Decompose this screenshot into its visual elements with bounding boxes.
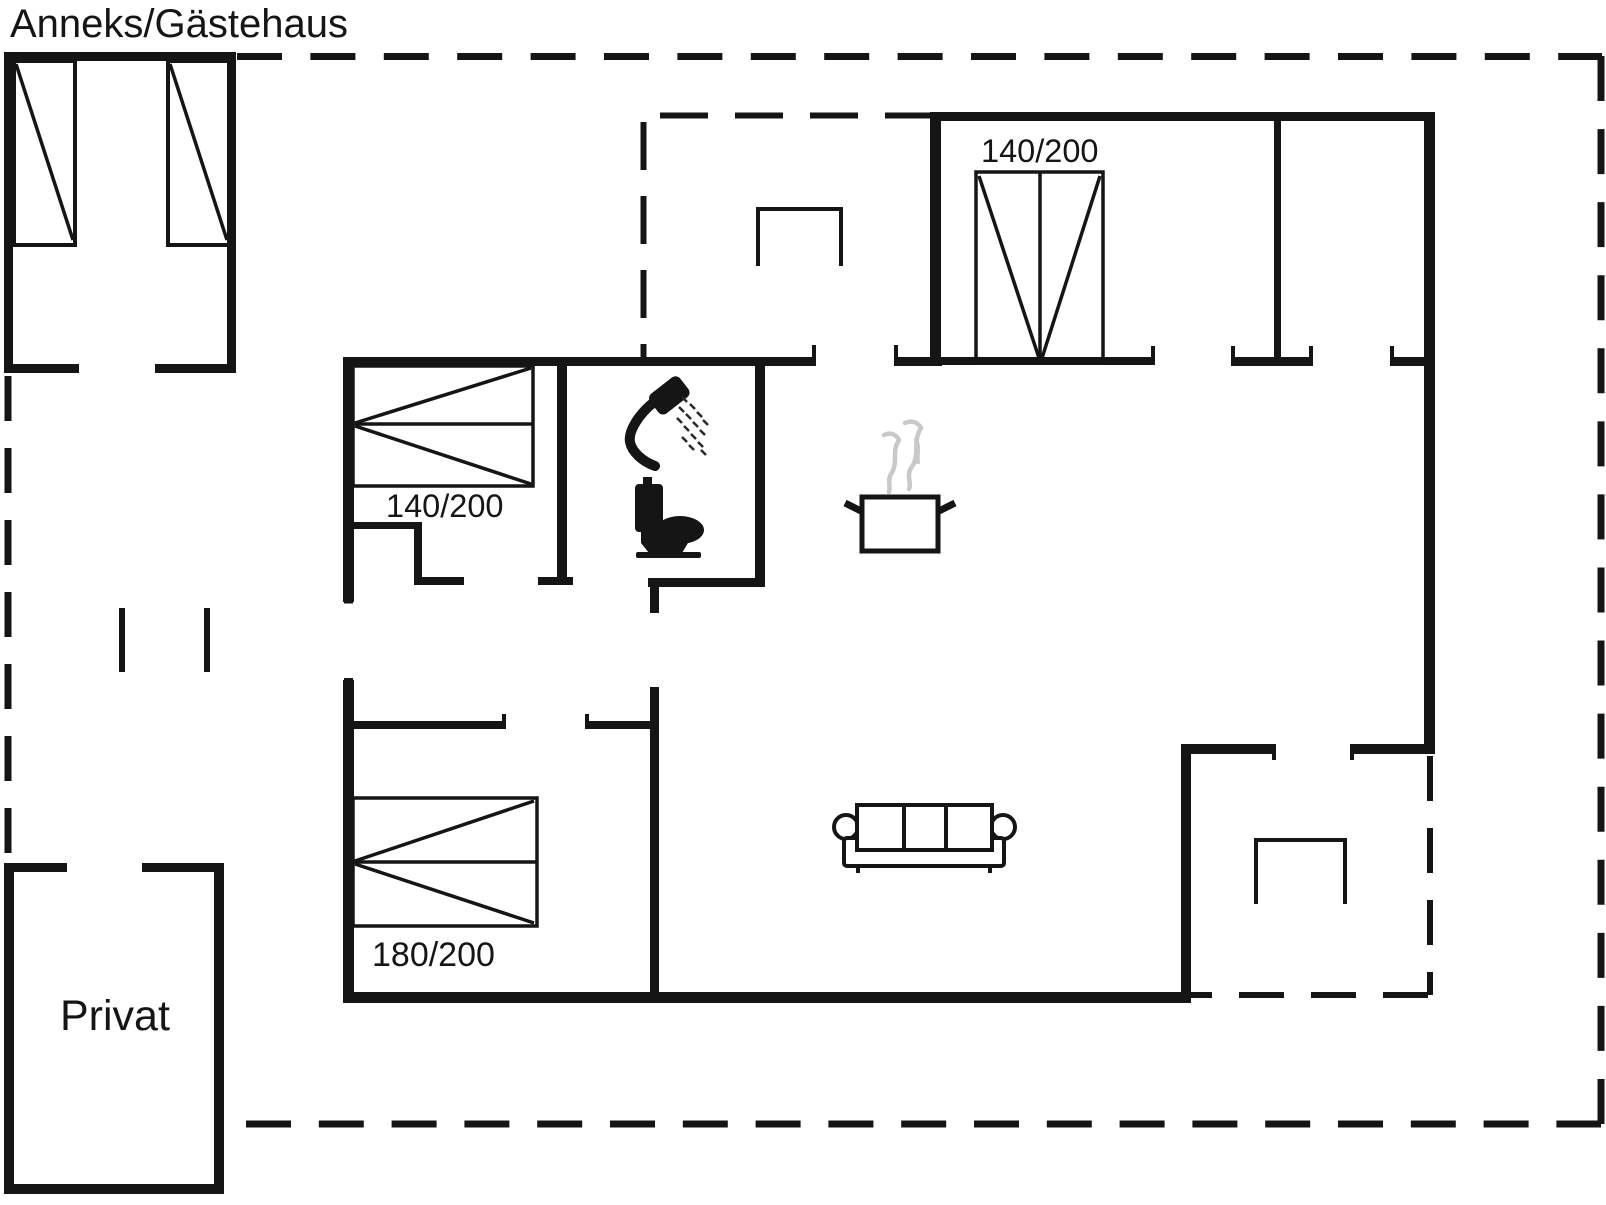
svg-text:Privat: Privat: [60, 992, 170, 1040]
svg-text:140/200: 140/200: [386, 488, 503, 524]
svg-text:Anneks/Gästehaus: Anneks/Gästehaus: [10, 2, 348, 46]
svg-text:180/200: 180/200: [372, 936, 495, 974]
svg-text:140/200: 140/200: [981, 133, 1098, 169]
